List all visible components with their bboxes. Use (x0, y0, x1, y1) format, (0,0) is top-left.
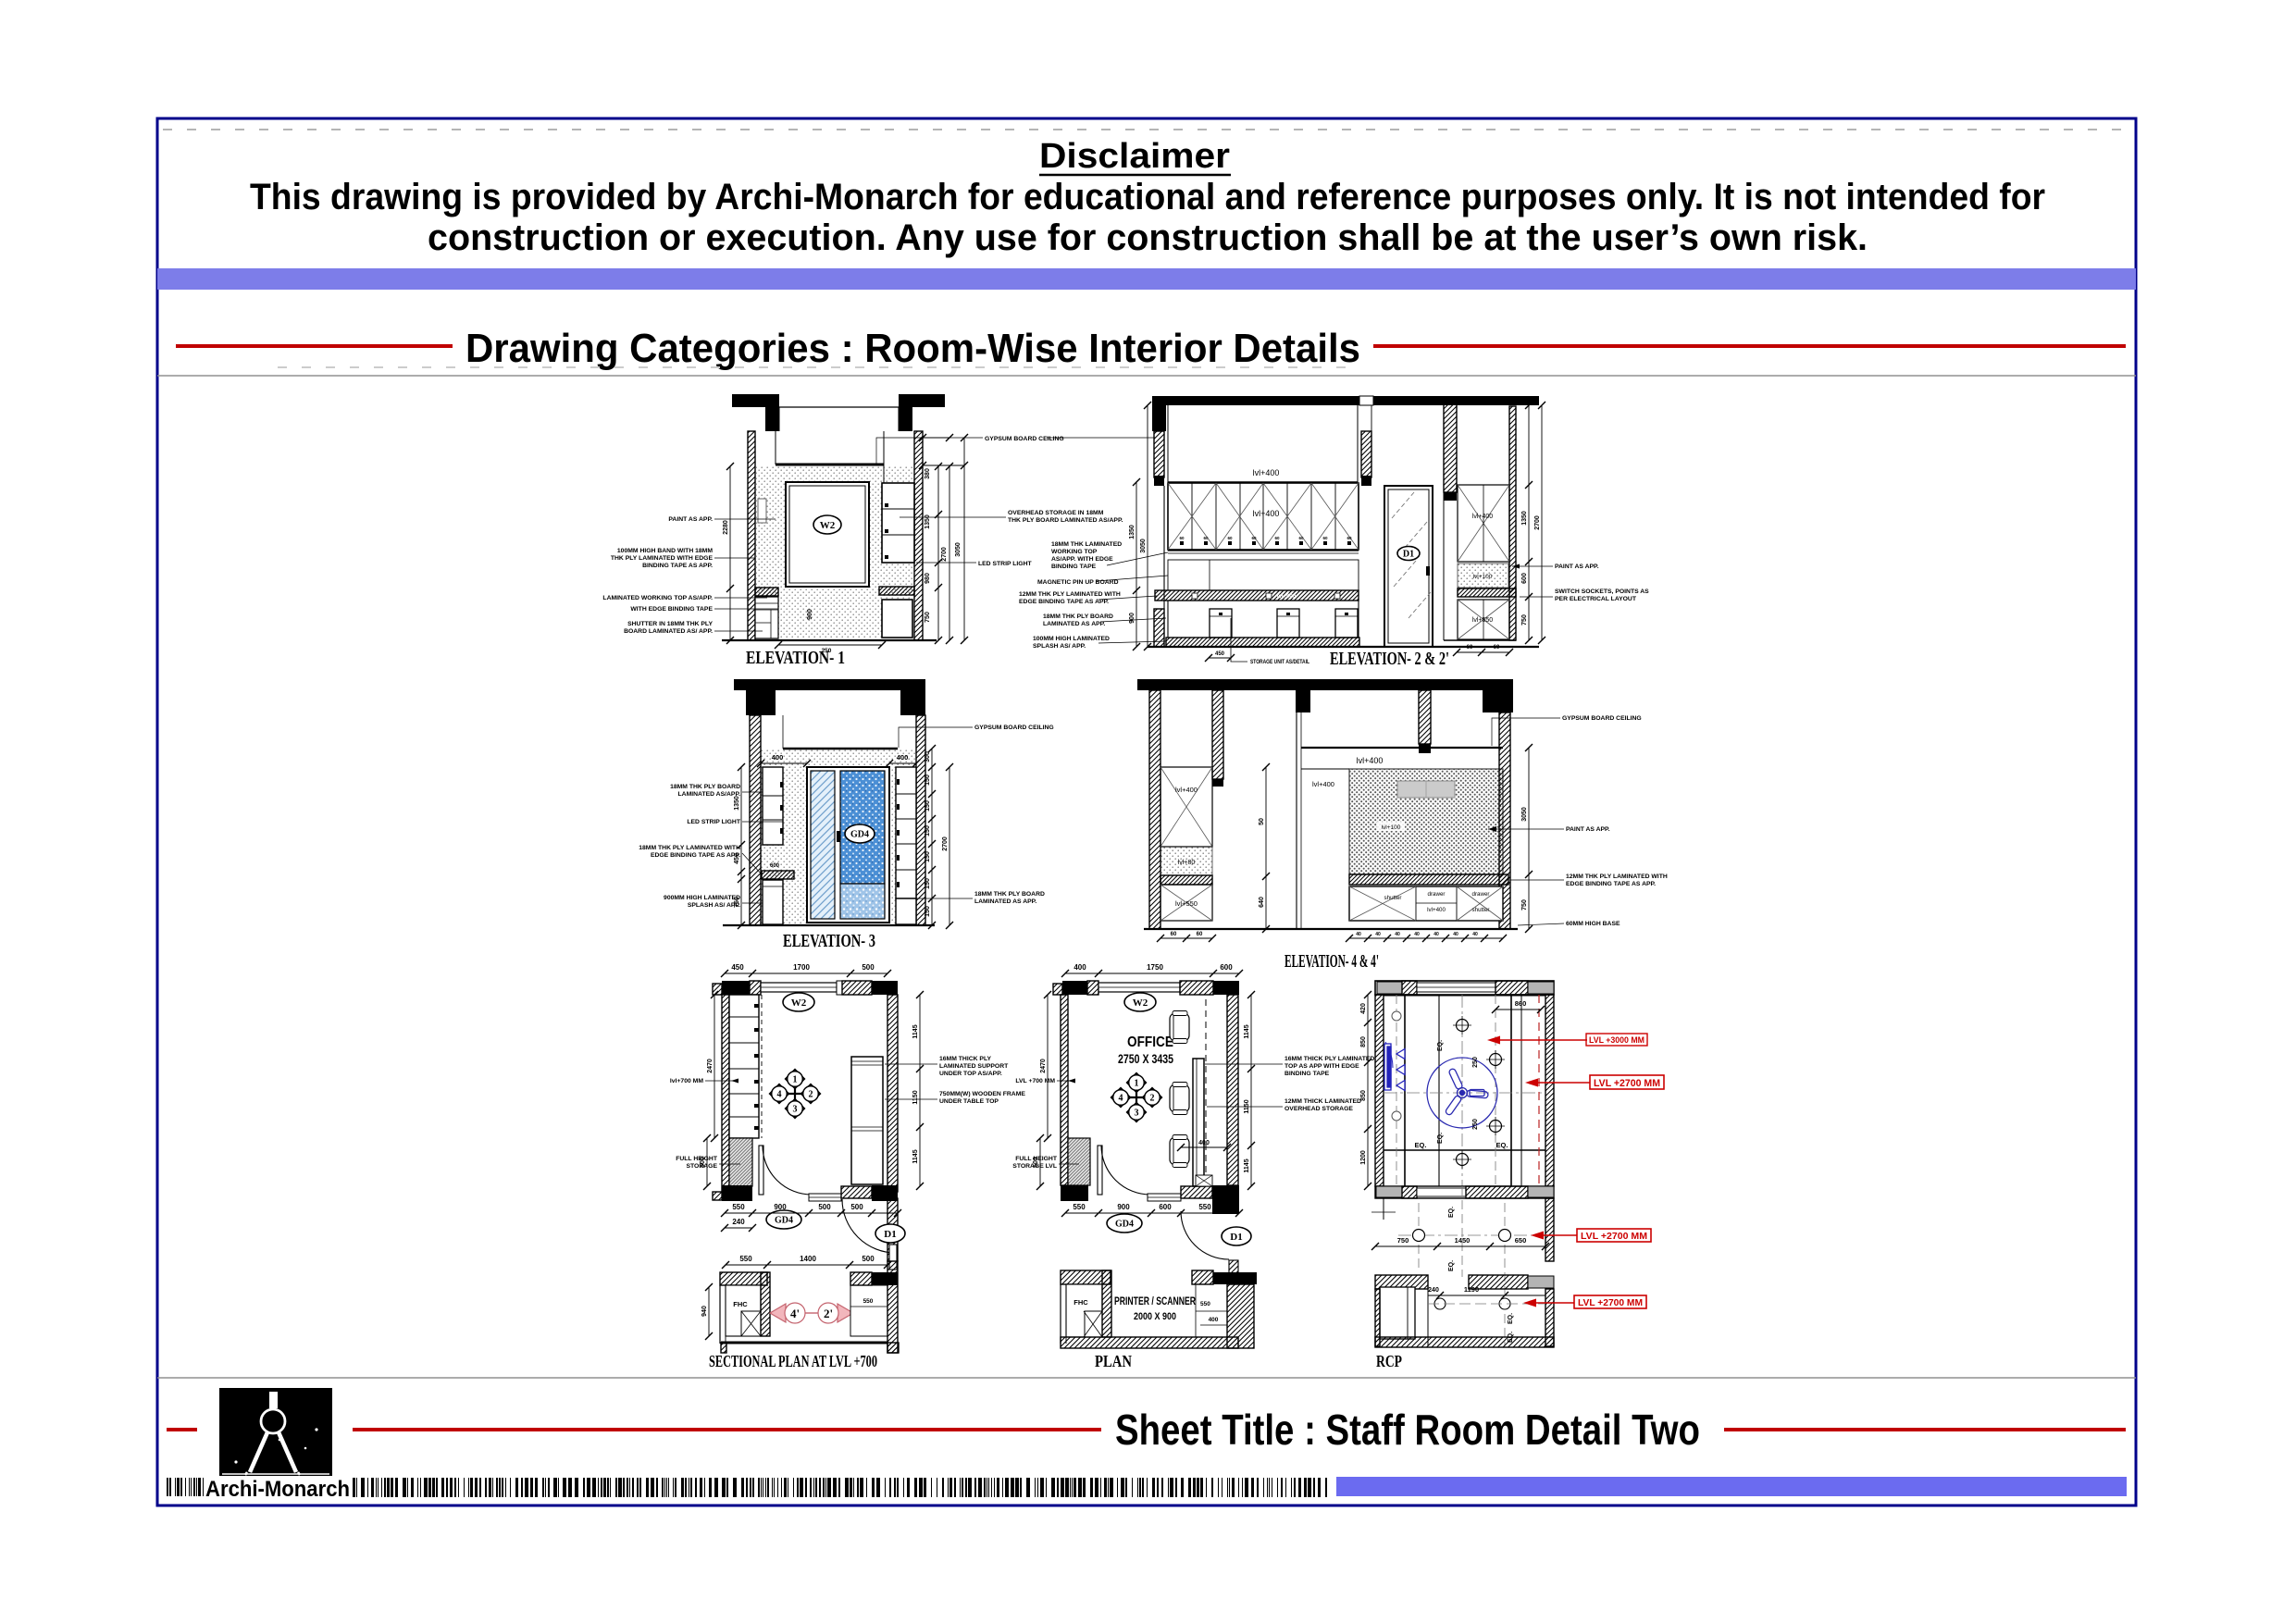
svg-text:lvl+700 MM: lvl+700 MM (670, 1078, 703, 1084)
svg-text:PAINT AS APP.: PAINT AS APP. (668, 516, 713, 523)
svg-text:1145: 1145 (1244, 1158, 1250, 1172)
svg-text:60: 60 (1203, 536, 1209, 540)
svg-text:600: 600 (1220, 963, 1233, 972)
svg-text:1145: 1145 (1244, 1024, 1250, 1038)
svg-text:lvl+900: lvl+900 (1277, 594, 1297, 600)
svg-text:lvl+400: lvl+400 (1175, 786, 1198, 794)
svg-text:BINDING TAPE: BINDING TAPE (1285, 1071, 1330, 1077)
svg-text:lvl+550: lvl+550 (1472, 617, 1493, 624)
svg-text:150: 150 (925, 825, 931, 836)
svg-text:550: 550 (739, 1255, 752, 1263)
svg-text:60: 60 (1467, 645, 1473, 650)
svg-text:150: 150 (925, 800, 931, 811)
svg-text:LAMINATED AS/APP.: LAMINATED AS/APP. (678, 791, 741, 798)
svg-text:D1: D1 (884, 1229, 896, 1240)
svg-text:1200: 1200 (1360, 1150, 1367, 1165)
svg-text:980: 980 (925, 573, 931, 584)
svg-text:PLAN: PLAN (1095, 1352, 1132, 1370)
svg-text:500: 500 (862, 963, 875, 972)
svg-text:Drawing Categories : Room-Wise: Drawing Categories : Room-Wise Interior … (465, 326, 1360, 371)
svg-text:60: 60 (1227, 536, 1233, 540)
svg-text:100MM HIGH BAND WITH 18MM: 100MM HIGH BAND WITH 18MM (617, 548, 713, 554)
svg-text:2: 2 (1150, 1094, 1155, 1104)
svg-text:750: 750 (1397, 1236, 1409, 1245)
svg-text:GD4: GD4 (850, 830, 869, 840)
svg-text:900: 900 (807, 609, 813, 620)
svg-text:lvl+400: lvl+400 (1312, 780, 1334, 788)
svg-text:40: 40 (1472, 932, 1478, 937)
svg-text:3050: 3050 (955, 542, 962, 557)
svg-text:EQ.: EQ. (1448, 1260, 1455, 1271)
svg-text:150: 150 (925, 906, 931, 917)
svg-text:3: 3 (1135, 1109, 1139, 1119)
svg-text:TOP AS APP WITH EDGE: TOP AS APP WITH EDGE (1285, 1063, 1359, 1070)
svg-text:D1: D1 (1230, 1232, 1242, 1243)
svg-text:420: 420 (1360, 1003, 1367, 1014)
svg-text:150: 150 (925, 878, 931, 889)
svg-text:40: 40 (1433, 932, 1439, 937)
svg-text:3: 3 (793, 1105, 798, 1115)
svg-text:OFFICE: OFFICE (1127, 1035, 1173, 1050)
svg-text:UNDER TABLE TOP: UNDER TABLE TOP (939, 1098, 999, 1105)
svg-text:4: 4 (777, 1090, 782, 1100)
svg-text:3050: 3050 (1521, 807, 1528, 822)
svg-text:550: 550 (1198, 1203, 1211, 1211)
svg-text:16MM THICK PLY LAMINATED,: 16MM THICK PLY LAMINATED, (1285, 1056, 1376, 1062)
svg-text:LAMINATED AS APP.: LAMINATED AS APP. (974, 898, 1036, 905)
svg-text:LVL +2700 MM: LVL +2700 MM (1581, 1231, 1647, 1242)
svg-text:940: 940 (701, 1306, 708, 1317)
svg-text:LVL +2700 MM: LVL +2700 MM (1578, 1297, 1643, 1308)
svg-text:640: 640 (1259, 897, 1265, 908)
svg-text:SPLASH AS/ APP.: SPLASH AS/ APP. (1033, 643, 1086, 650)
svg-text:STORAGE UNIT AS/DETAIL: STORAGE UNIT AS/DETAIL (1250, 659, 1309, 665)
svg-text:2280: 2280 (723, 520, 729, 535)
svg-text:240: 240 (1428, 1287, 1439, 1294)
svg-text:2700: 2700 (1534, 515, 1541, 530)
svg-text:40: 40 (1453, 932, 1458, 937)
svg-text:400: 400 (1209, 1317, 1219, 1323)
svg-text:SWITCH SOCKETS, POINTS AS: SWITCH SOCKETS, POINTS AS (1555, 588, 1649, 595)
svg-text:1145: 1145 (912, 1149, 919, 1163)
svg-text:1400: 1400 (800, 1255, 816, 1263)
svg-text:lvl+400: lvl+400 (1472, 514, 1493, 520)
svg-text:500: 500 (862, 1255, 875, 1263)
svg-text:900MM HIGH LAMINATED: 900MM HIGH LAMINATED (664, 895, 740, 901)
svg-text:2: 2 (809, 1090, 813, 1100)
svg-text:W2: W2 (820, 520, 836, 531)
svg-text:1350: 1350 (925, 514, 931, 529)
svg-text:EQ.: EQ. (1496, 1141, 1508, 1149)
svg-text:1750: 1750 (1147, 963, 1163, 972)
svg-text:60: 60 (1274, 536, 1280, 540)
svg-text:60: 60 (1322, 536, 1328, 540)
svg-text:240: 240 (732, 1218, 745, 1226)
svg-text:D1: D1 (1403, 550, 1414, 560)
svg-text:lvl+100: lvl+100 (1382, 824, 1401, 831)
svg-text:16MM THICK PLY: 16MM THICK PLY (939, 1056, 991, 1062)
svg-text:1: 1 (1135, 1079, 1139, 1089)
svg-text:18MM THK PLY BOARD: 18MM THK PLY BOARD (974, 891, 1045, 898)
svg-text:EDGE BINDING TAPE AS APP.: EDGE BINDING TAPE AS APP. (1566, 881, 1656, 887)
svg-text:450: 450 (731, 963, 744, 972)
svg-text:PRINTER / SCANNER: PRINTER / SCANNER (1114, 1295, 1196, 1307)
svg-text:EQ.: EQ. (1437, 1040, 1444, 1051)
svg-text:2470: 2470 (707, 1059, 714, 1073)
svg-text:40: 40 (1414, 932, 1420, 937)
svg-text:2750 X 3435: 2750 X 3435 (1118, 1051, 1173, 1066)
svg-text:1450: 1450 (1455, 1236, 1471, 1245)
svg-text:SHUTTER IN 18MM THK PLY: SHUTTER IN 18MM THK PLY (627, 621, 713, 627)
svg-text:RCP: RCP (1376, 1352, 1402, 1370)
svg-text:lvl+400: lvl+400 (1357, 756, 1384, 765)
svg-text:Sheet Title : Staff Room Detai: Sheet Title : Staff Room Detail Two (1115, 1406, 1700, 1454)
svg-text:150: 150 (925, 851, 931, 862)
svg-text:250: 250 (1472, 1057, 1479, 1068)
svg-text:BINDING TAPE AS APP.: BINDING TAPE AS APP. (642, 563, 713, 569)
svg-text:EQ.: EQ. (1437, 1133, 1444, 1144)
svg-text:EQ.: EQ. (1508, 1313, 1514, 1324)
svg-text:THK PLY BOARD LAMINATED AS/APP: THK PLY BOARD LAMINATED AS/APP. (1008, 517, 1123, 524)
svg-text:500: 500 (818, 1203, 831, 1211)
svg-text:lvl+400: lvl+400 (1427, 907, 1446, 913)
svg-text:750MM(W) WOODEN FRAME: 750MM(W) WOODEN FRAME (939, 1091, 1025, 1097)
svg-text:GD4: GD4 (1115, 1220, 1134, 1230)
svg-text:850: 850 (1360, 1036, 1367, 1047)
svg-text:150: 150 (925, 774, 931, 786)
svg-text:ELEVATION- 4 & 4': ELEVATION- 4 & 4' (1285, 951, 1379, 972)
svg-text:60: 60 (1347, 536, 1352, 540)
svg-text:12MM THICK LAMINATED: 12MM THICK LAMINATED (1285, 1098, 1361, 1105)
svg-text:shutter: shutter (1384, 895, 1402, 901)
svg-text:750: 750 (1521, 614, 1528, 626)
svg-text:18MM THK LAMINATED: 18MM THK LAMINATED (1051, 541, 1122, 548)
svg-text:LVL +700 MM: LVL +700 MM (1015, 1078, 1055, 1084)
svg-text:AS/APP. WITH EDGE: AS/APP. WITH EDGE (1051, 556, 1113, 563)
svg-text:600: 600 (1521, 573, 1528, 584)
svg-text:12MM THK PLY LAMINATED WITH: 12MM THK PLY LAMINATED WITH (1019, 591, 1121, 598)
svg-text:LAMINATED SUPPORT: LAMINATED SUPPORT (939, 1063, 1009, 1070)
svg-text:LAMINATED AS APP.: LAMINATED AS APP. (1043, 621, 1105, 627)
svg-text:2470: 2470 (1040, 1059, 1047, 1073)
svg-text:400: 400 (772, 753, 784, 762)
svg-text:Disclaimer: Disclaimer (1039, 137, 1230, 176)
svg-text:60: 60 (1197, 932, 1203, 937)
svg-text:900: 900 (774, 1203, 787, 1211)
svg-text:600: 600 (1159, 1203, 1172, 1211)
svg-text:W2: W2 (791, 997, 807, 1009)
svg-text:400: 400 (1198, 1140, 1210, 1146)
svg-text:18MM THK PLY LAMINATED WITH: 18MM THK PLY LAMINATED WITH (639, 845, 740, 851)
svg-text:2700: 2700 (942, 836, 949, 851)
svg-text:900: 900 (1129, 613, 1136, 624)
svg-text:THK PLY LAMINATED WITH EDGE: THK PLY LAMINATED WITH EDGE (611, 555, 714, 562)
svg-text:1: 1 (793, 1075, 798, 1085)
svg-text:100MM HIGH LAMINATED: 100MM HIGH LAMINATED (1033, 636, 1110, 642)
svg-text:60: 60 (1179, 536, 1185, 540)
svg-text:900: 900 (1117, 1203, 1130, 1211)
svg-text:60MM HIGH BASE: 60MM HIGH BASE (1566, 921, 1620, 927)
svg-text:550: 550 (732, 1203, 745, 1211)
svg-text:Archi-Monarch: Archi-Monarch (205, 1477, 350, 1502)
svg-text:OVERHEAD STORAGE: OVERHEAD STORAGE (1285, 1106, 1353, 1112)
svg-text:EDGE BINDING TAPE AS APP.: EDGE BINDING TAPE AS APP. (651, 852, 740, 859)
svg-text:drawer: drawer (1472, 891, 1490, 898)
svg-text:PER ELECTRICAL LAYOUT: PER ELECTRICAL LAYOUT (1555, 596, 1637, 602)
svg-text:LED STRIP LIGHT: LED STRIP LIGHT (978, 561, 1032, 567)
svg-text:lvl+80: lvl+80 (1178, 860, 1196, 866)
svg-text:drawer: drawer (1428, 891, 1446, 898)
svg-text:400: 400 (1074, 963, 1086, 972)
svg-text:FHC: FHC (1074, 1298, 1088, 1307)
svg-text:18MM THK PLY BOARD: 18MM THK PLY BOARD (1043, 613, 1113, 620)
svg-text:OVERHEAD STORAGE IN 18MM: OVERHEAD STORAGE IN 18MM (1008, 510, 1104, 516)
svg-text:lvl+400: lvl+400 (1253, 468, 1280, 477)
svg-text:BINDING TAPE: BINDING TAPE (1051, 564, 1097, 570)
svg-text:WITH EDGE BINDING TAPE: WITH EDGE BINDING TAPE (630, 606, 713, 613)
svg-text:1350: 1350 (1129, 525, 1136, 539)
svg-text:LED STRIP LIGHT: LED STRIP LIGHT (687, 819, 740, 825)
svg-text:shutter: shutter (1472, 907, 1490, 913)
svg-text:550: 550 (1073, 1203, 1086, 1211)
svg-text:UNDER TOP AS/APP.: UNDER TOP AS/APP. (939, 1071, 1002, 1077)
svg-text:850: 850 (1360, 1090, 1367, 1101)
svg-text:2': 2' (824, 1307, 833, 1320)
svg-text:ELEVATION- 3: ELEVATION- 3 (783, 931, 875, 951)
svg-text:lvl+400: lvl+400 (1253, 509, 1280, 518)
svg-text:40: 40 (1375, 932, 1381, 937)
svg-text:SPLASH AS/ APP.: SPLASH AS/ APP. (688, 902, 740, 909)
svg-text:60: 60 (1298, 536, 1304, 540)
svg-text:lvl+100: lvl+100 (1473, 574, 1493, 580)
svg-text:1350: 1350 (734, 796, 740, 811)
svg-text:LVL +2700 MM: LVL +2700 MM (1594, 1078, 1660, 1089)
svg-text:1700: 1700 (793, 963, 810, 972)
svg-text:600: 600 (770, 863, 780, 869)
svg-text:GYPSUM BOARD CEILING: GYPSUM BOARD CEILING (1562, 715, 1642, 722)
svg-text:construction or execution. Any: construction or execution. Any use for c… (428, 217, 1868, 258)
svg-text:380: 380 (925, 468, 931, 479)
svg-text:60: 60 (1171, 932, 1177, 937)
svg-text:750: 750 (925, 612, 931, 623)
svg-text:50: 50 (1259, 818, 1265, 825)
svg-text:12MM THK PLY LAMINATED WITH: 12MM THK PLY LAMINATED WITH (1566, 873, 1668, 880)
svg-text:W2: W2 (1133, 997, 1148, 1009)
svg-text:FHC: FHC (733, 1300, 748, 1308)
svg-text:FULL HEIGHT: FULL HEIGHT (676, 1156, 718, 1162)
svg-text:500: 500 (1033, 1157, 1039, 1168)
svg-text:WORKING TOP: WORKING TOP (1051, 549, 1098, 555)
svg-text:1150: 1150 (912, 1090, 919, 1104)
svg-text:400: 400 (897, 753, 909, 762)
svg-text:2000 X 900: 2000 X 900 (1134, 1311, 1176, 1322)
svg-text:300: 300 (925, 751, 931, 762)
svg-text:650: 650 (1515, 1236, 1527, 1245)
svg-text:This drawing is provided by Ar: This drawing is provided by Archi-Monarc… (250, 177, 2045, 217)
svg-text:ELEVATION- 2 & 2': ELEVATION- 2 & 2' (1330, 649, 1449, 669)
svg-text:GYPSUM BOARD CEILING: GYPSUM BOARD CEILING (985, 436, 1064, 442)
svg-text:GD4: GD4 (775, 1216, 793, 1226)
svg-text:40: 40 (1395, 932, 1400, 937)
svg-text:18MM THK PLY BOARD: 18MM THK PLY BOARD (670, 784, 740, 790)
svg-text:ELEVATION- 1: ELEVATION- 1 (746, 648, 845, 668)
svg-text:4: 4 (1119, 1094, 1123, 1104)
svg-text:500: 500 (700, 1157, 706, 1168)
svg-text:450: 450 (1215, 651, 1225, 657)
svg-text:3050: 3050 (1140, 539, 1147, 553)
svg-text:60: 60 (1251, 536, 1257, 540)
svg-text:GYPSUM BOARD CEILING: GYPSUM BOARD CEILING (974, 725, 1054, 731)
svg-text:EDGE BINDING TAPE AS APP.: EDGE BINDING TAPE AS APP. (1019, 599, 1109, 605)
svg-text:1145: 1145 (912, 1024, 919, 1038)
svg-text:550: 550 (1200, 1301, 1210, 1307)
svg-text:PAINT AS APP.: PAINT AS APP. (1555, 564, 1599, 570)
svg-text:2700: 2700 (941, 547, 948, 562)
svg-text:750: 750 (1521, 899, 1528, 911)
svg-text:BOARD LAMINATED AS/ APP.: BOARD LAMINATED AS/ APP. (624, 628, 713, 635)
svg-text:40: 40 (1356, 932, 1361, 937)
svg-text:lvl+550: lvl+550 (1175, 899, 1198, 908)
svg-text:EQ.: EQ. (1448, 1207, 1455, 1218)
svg-text:1350: 1350 (1521, 511, 1528, 526)
svg-text:EQ.: EQ. (1415, 1141, 1427, 1149)
svg-text:500: 500 (850, 1203, 863, 1211)
svg-text:LAMINATED WORKING TOP AS/APP.: LAMINATED WORKING TOP AS/APP. (602, 595, 713, 601)
svg-text:LVL +3000 MM: LVL +3000 MM (1589, 1035, 1644, 1046)
svg-text:550: 550 (863, 1298, 874, 1305)
svg-text:4': 4' (790, 1307, 800, 1320)
svg-text:860: 860 (1515, 999, 1527, 1008)
svg-text:60: 60 (1494, 645, 1500, 650)
svg-text:SECTIONAL PLAN AT LVL +700: SECTIONAL PLAN AT LVL +700 (709, 1352, 877, 1370)
svg-text:PAINT AS APP.: PAINT AS APP. (1566, 826, 1610, 833)
svg-text:250: 250 (1472, 1119, 1479, 1130)
svg-text:1190: 1190 (1464, 1285, 1479, 1294)
